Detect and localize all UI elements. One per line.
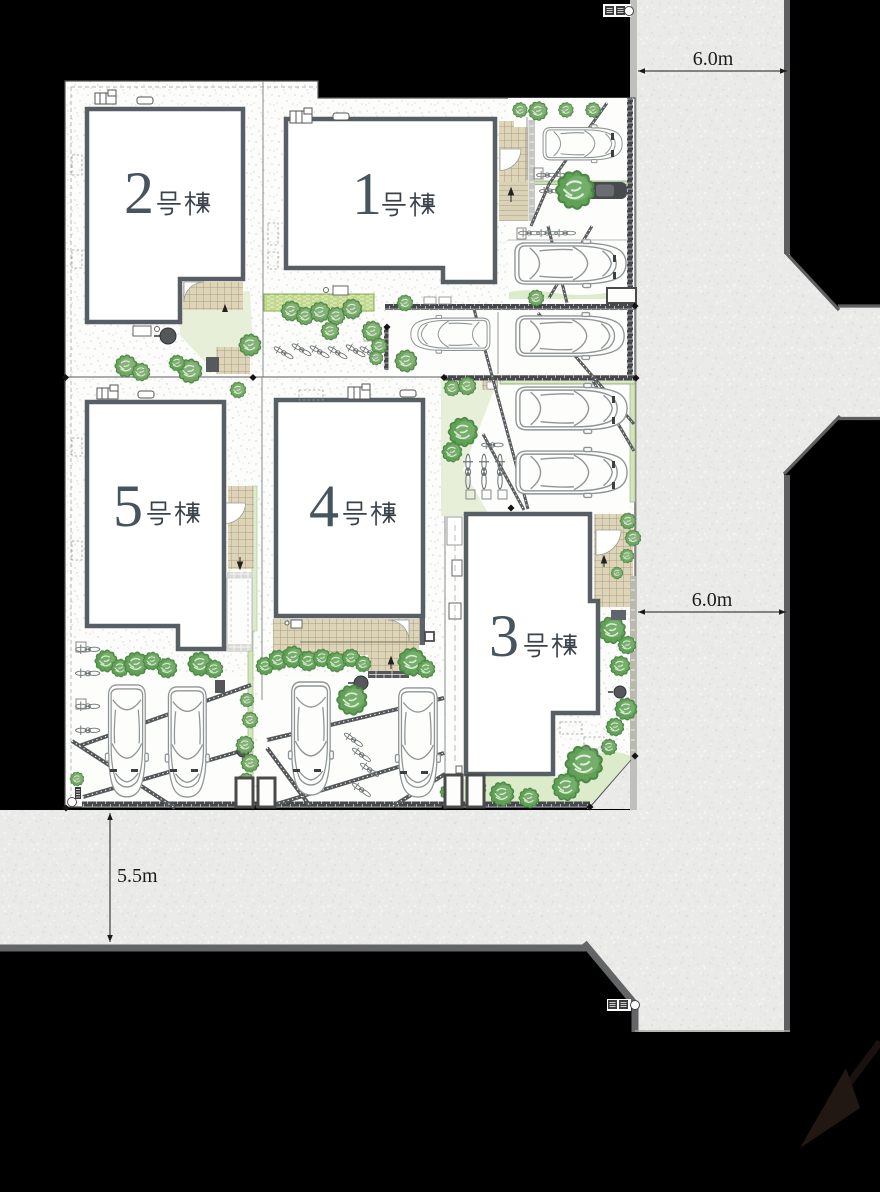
svg-text:2: 2 — [124, 160, 154, 226]
svg-text:3: 3 — [489, 603, 519, 669]
svg-text:5.5m: 5.5m — [117, 865, 158, 887]
svg-text:1: 1 — [352, 161, 382, 227]
svg-text:6.0m: 6.0m — [692, 589, 733, 611]
svg-text:4: 4 — [309, 473, 339, 539]
svg-text:6.0m: 6.0m — [693, 48, 734, 70]
svg-text:5: 5 — [113, 473, 143, 539]
